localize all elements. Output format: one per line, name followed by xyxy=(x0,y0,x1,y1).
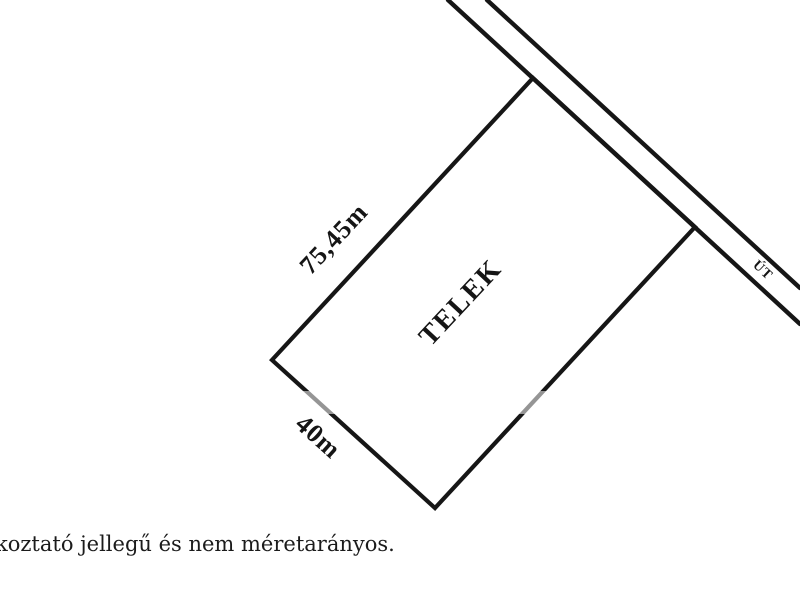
road-line-upper xyxy=(487,0,800,288)
parcel-sketch: TELEK 75,45m 40m ÚT koztató jellegű és n… xyxy=(0,0,800,600)
footnote: koztató jellegű és nem méretarányos. xyxy=(0,531,395,558)
sketch-lines xyxy=(0,0,800,600)
